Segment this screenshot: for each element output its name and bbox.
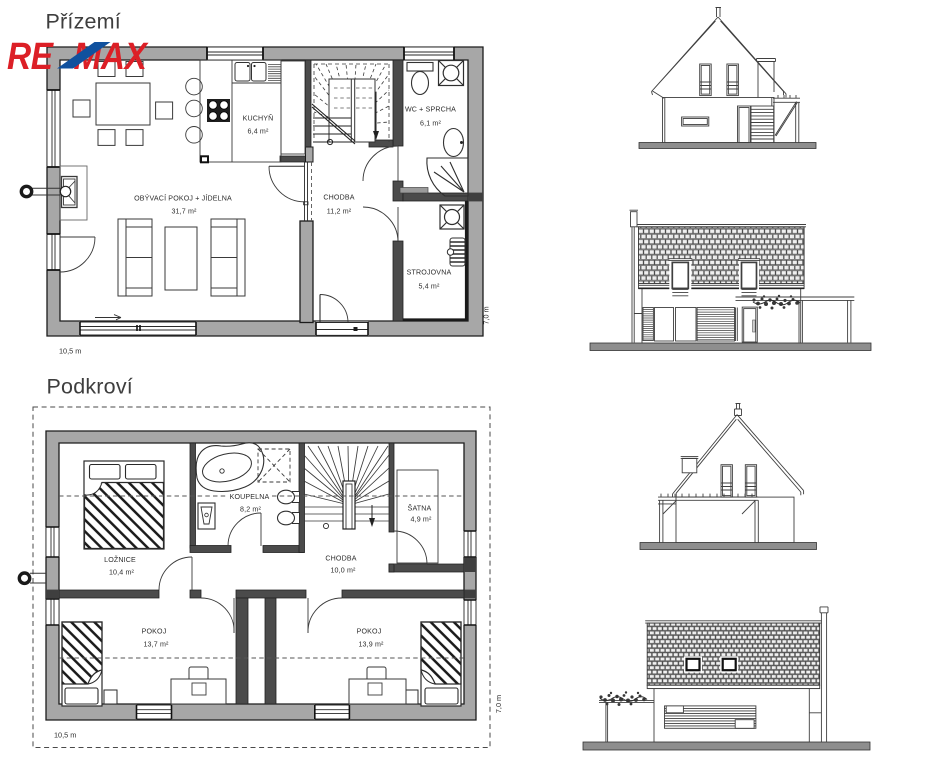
svg-text:WC + SPRCHA: WC + SPRCHA <box>405 106 456 114</box>
svg-text:Podkroví: Podkroví <box>47 375 133 399</box>
svg-text:10,4 m²: 10,4 m² <box>109 569 135 577</box>
svg-text:11,2 m²: 11,2 m² <box>327 208 352 216</box>
svg-text:OBÝVACÍ POKOJ + JÍDELNA: OBÝVACÍ POKOJ + JÍDELNA <box>134 194 232 203</box>
svg-text:6,1 m²: 6,1 m² <box>420 120 441 128</box>
svg-text:13,9 m²: 13,9 m² <box>358 641 384 649</box>
svg-text:6,4 m²: 6,4 m² <box>247 128 268 136</box>
svg-text:13,7 m²: 13,7 m² <box>143 641 169 649</box>
svg-text:KUCHYŇ: KUCHYŇ <box>243 114 274 123</box>
svg-text:ŠATNA: ŠATNA <box>408 504 432 513</box>
svg-text:7,0 m: 7,0 m <box>494 695 503 713</box>
svg-text:POKOJ: POKOJ <box>357 628 382 636</box>
svg-text:31,7 m²: 31,7 m² <box>171 208 197 216</box>
svg-text:7,0 m: 7,0 m <box>482 306 491 324</box>
svg-text:RE: RE <box>7 35 54 77</box>
svg-text:KOUPELNA: KOUPELNA <box>230 493 270 501</box>
svg-text:Přízemí: Přízemí <box>46 10 121 34</box>
svg-text:8,2 m²: 8,2 m² <box>240 506 261 514</box>
svg-text:STROJOVNA: STROJOVNA <box>407 269 452 277</box>
svg-text:4,9 m²: 4,9 m² <box>410 516 431 524</box>
svg-text:CHODBA: CHODBA <box>323 194 354 202</box>
svg-text:POKOJ: POKOJ <box>142 628 167 636</box>
svg-text:CHODBA: CHODBA <box>325 555 356 563</box>
svg-text:10,0 m²: 10,0 m² <box>330 567 356 575</box>
svg-text:10,5 m: 10,5 m <box>59 347 81 356</box>
svg-text:LOŽNICE: LOŽNICE <box>104 555 136 564</box>
svg-text:5,4 m²: 5,4 m² <box>418 283 439 291</box>
svg-text:10,5 m: 10,5 m <box>54 731 76 740</box>
